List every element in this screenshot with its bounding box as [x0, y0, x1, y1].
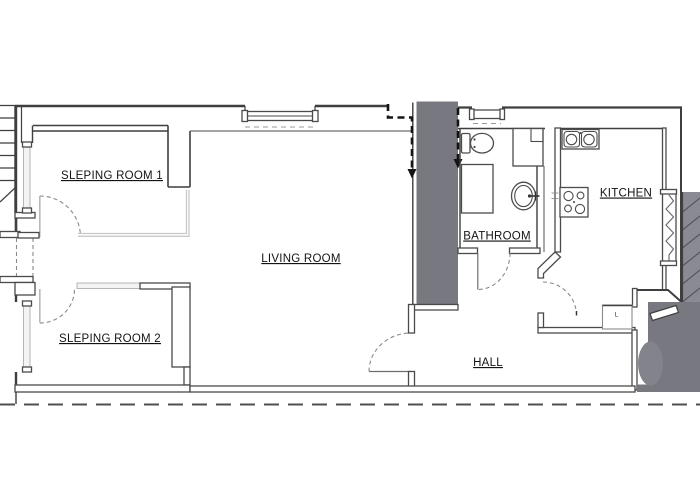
window-sleeping-room-2-icon: [23, 301, 32, 372]
bathroom-door-icon: [478, 253, 510, 290]
window-bathroom-icon: [470, 109, 505, 124]
living-room: [190, 111, 412, 372]
label-sleeping-room-2: SLEPING ROOM 2: [59, 333, 161, 345]
floor-plan-drawing: L SLEPING ROOM 1 SLEPING ROOM 2 LIVING R…: [0, 0, 700, 500]
label-hall: HALL: [473, 357, 503, 369]
label-living-room: LIVING ROOM: [261, 253, 340, 265]
kitchen-door-icon: [543, 282, 577, 316]
sleeping-room-2-door-icon: [40, 289, 75, 323]
label-sleeping-room-1: SLEPING ROOM 1: [61, 170, 163, 182]
entrance-door-swing: [638, 342, 663, 386]
living-room-door-icon: [369, 333, 411, 372]
floor-plan-canvas: L SLEPING ROOM 1 SLEPING ROOM 2 LIVING R…: [0, 0, 700, 500]
kitchen-sink-icon: [562, 130, 599, 150]
shaft: [413, 102, 459, 311]
kitchen: [538, 128, 677, 316]
bathroom: [458, 109, 545, 290]
sr2-right-wall: [172, 287, 190, 367]
light-partition-outline: [78, 190, 189, 236]
shower-tray-icon: [462, 165, 494, 214]
washbasin-icon: [512, 182, 540, 210]
window-sleeping-room-1-icon: [23, 142, 32, 213]
window-living-room-icon: [242, 111, 318, 128]
label-bathroom: BATHROOM: [463, 231, 531, 243]
toilet-icon: [462, 133, 494, 153]
wardrobe-icon: L: [603, 305, 633, 329]
bottom-walls: [0, 385, 700, 405]
exterior-staircase-icon: [683, 192, 700, 304]
shaft-fill: [417, 102, 459, 306]
staircase-top-left-icon: [0, 105, 16, 213]
kitchen-chamfer-wall: [538, 252, 561, 278]
wardrobe-label: L: [615, 312, 619, 319]
label-kitchen: KITCHEN: [600, 188, 652, 200]
entrance-area: L: [603, 192, 700, 392]
window-kitchen-icon: [661, 190, 677, 266]
shower-cabin-icon: [513, 129, 543, 167]
